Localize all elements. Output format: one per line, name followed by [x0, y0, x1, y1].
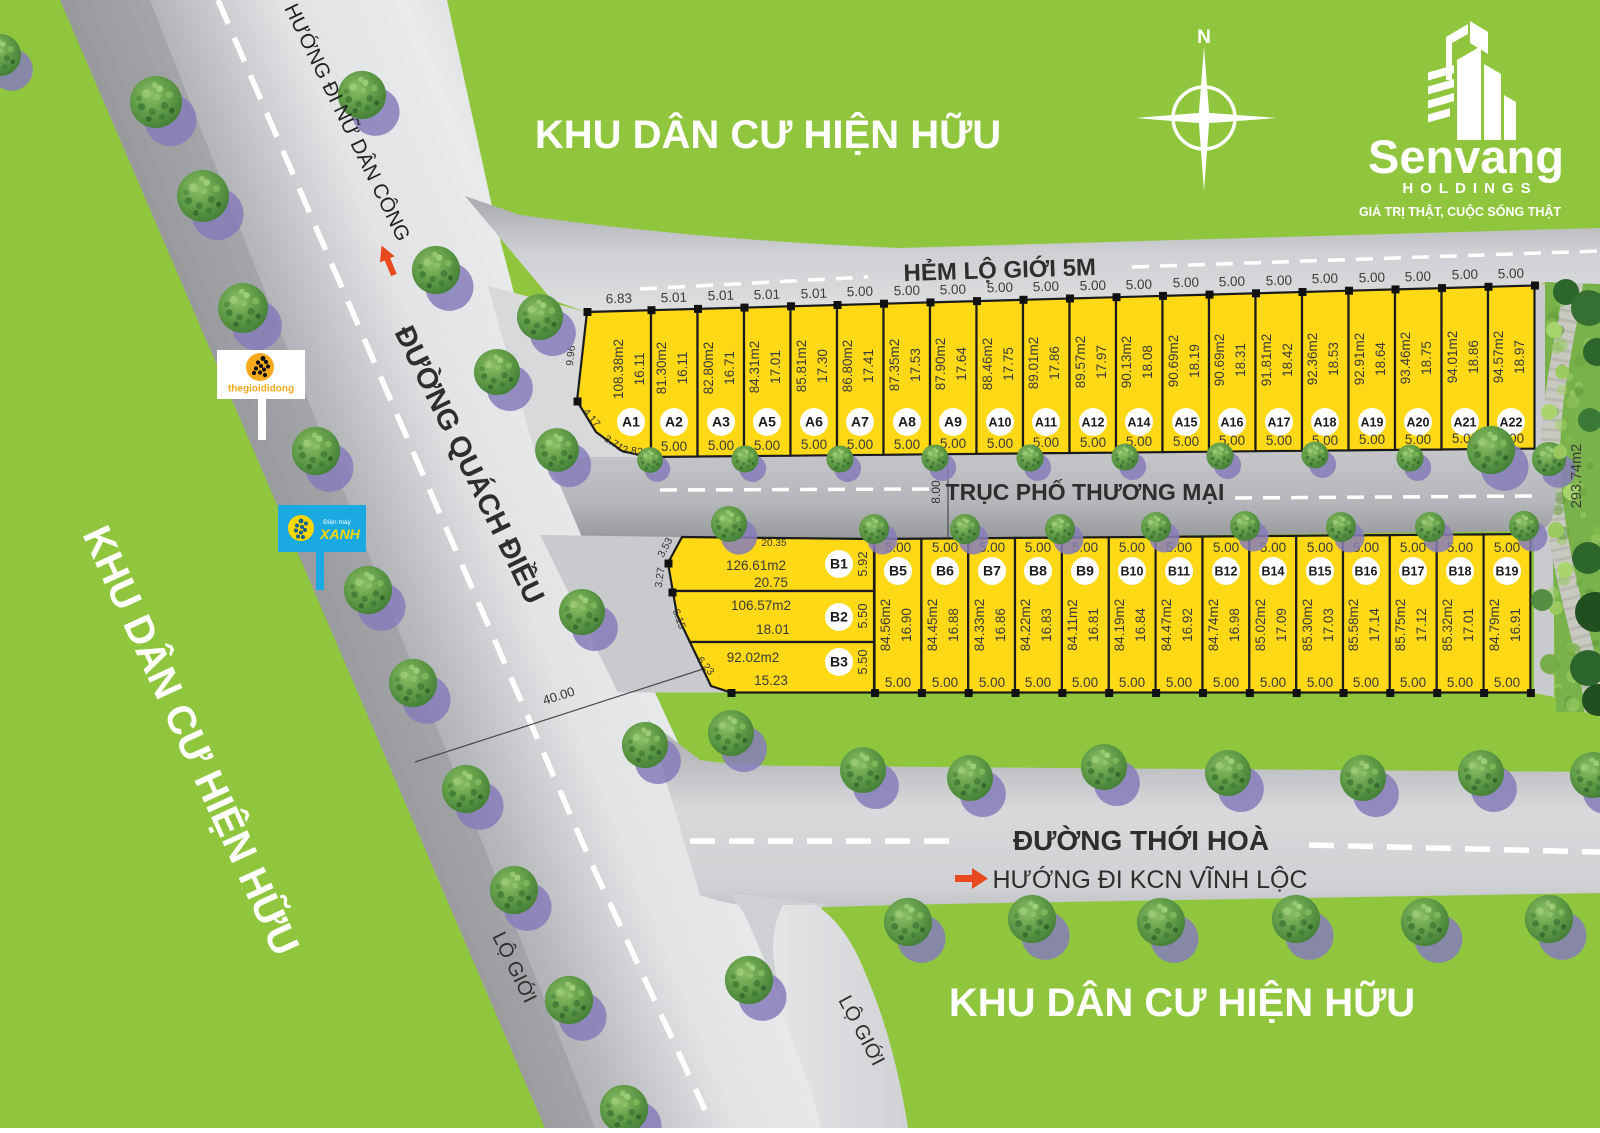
svg-text:86.80m2: 86.80m2	[840, 340, 855, 393]
svg-text:16.81: 16.81	[1086, 608, 1101, 642]
svg-text:84.31m2: 84.31m2	[747, 341, 762, 394]
svg-text:17.41: 17.41	[861, 349, 876, 383]
svg-text:Điện máy: Điện máy	[323, 519, 351, 526]
svg-text:B16: B16	[1355, 565, 1378, 579]
svg-text:5.00: 5.00	[847, 437, 873, 452]
svg-text:5.00: 5.00	[1080, 435, 1106, 450]
svg-text:B15: B15	[1309, 565, 1332, 579]
svg-text:B3: B3	[830, 654, 848, 670]
svg-text:5.00: 5.00	[1072, 675, 1098, 690]
svg-text:84.47m2: 84.47m2	[1159, 599, 1174, 652]
svg-text:18.19: 18.19	[1187, 344, 1202, 378]
svg-text:A19: A19	[1361, 416, 1384, 430]
svg-text:85.58m2: 85.58m2	[1346, 599, 1361, 652]
svg-text:16.88: 16.88	[946, 608, 961, 642]
svg-text:18.75: 18.75	[1419, 341, 1434, 375]
svg-text:82.80m2: 82.80m2	[701, 342, 716, 395]
svg-text:18.08: 18.08	[1140, 345, 1155, 379]
svg-text:5.50: 5.50	[855, 649, 870, 674]
svg-text:17.53: 17.53	[908, 348, 923, 382]
svg-text:5.00: 5.00	[1126, 277, 1153, 293]
svg-text:A2: A2	[665, 414, 683, 430]
svg-text:84.74m2: 84.74m2	[1206, 599, 1221, 652]
svg-text:A20: A20	[1407, 416, 1430, 430]
svg-text:B8: B8	[1029, 563, 1047, 579]
svg-text:17.30: 17.30	[815, 349, 830, 383]
svg-text:92.91m2: 92.91m2	[1352, 333, 1367, 386]
svg-text:92.02m2: 92.02m2	[727, 650, 780, 665]
svg-text:5.00: 5.00	[1260, 675, 1286, 690]
svg-text:16.11: 16.11	[632, 353, 647, 386]
svg-text:KHU DÂN CƯ HIỆN HỮU: KHU DÂN CƯ HIỆN HỮU	[949, 979, 1415, 1025]
svg-text:B7: B7	[983, 563, 1001, 579]
svg-text:84.33m2: 84.33m2	[972, 599, 987, 652]
svg-text:B19: B19	[1496, 565, 1519, 579]
svg-text:A22: A22	[1500, 416, 1523, 430]
svg-text:A7: A7	[851, 414, 869, 430]
svg-text:5.00: 5.00	[1494, 540, 1520, 555]
svg-text:89.57m2: 89.57m2	[1073, 336, 1088, 389]
svg-text:B12: B12	[1215, 565, 1238, 579]
svg-text:17.97: 17.97	[1094, 345, 1109, 379]
svg-text:5.00: 5.00	[1266, 433, 1292, 448]
svg-text:5.00: 5.00	[1359, 270, 1386, 286]
svg-text:17.03: 17.03	[1321, 608, 1336, 642]
svg-text:90.13m2: 90.13m2	[1119, 336, 1134, 389]
svg-text:5.00: 5.00	[979, 675, 1005, 690]
svg-text:5.00: 5.00	[1025, 540, 1051, 555]
svg-text:81.30m2: 81.30m2	[654, 342, 669, 395]
svg-text:5.01: 5.01	[708, 288, 735, 304]
svg-text:87.90m2: 87.90m2	[933, 338, 948, 391]
svg-text:93.46m2: 93.46m2	[1398, 332, 1413, 385]
svg-text:A9: A9	[944, 414, 962, 430]
svg-text:5.00: 5.00	[1312, 271, 1339, 287]
svg-text:5.00: 5.00	[1400, 540, 1426, 555]
svg-text:5.00: 5.00	[1119, 540, 1145, 555]
svg-text:84.56m2: 84.56m2	[878, 599, 893, 652]
svg-text:XANH: XANH	[319, 526, 361, 542]
svg-text:17.09: 17.09	[1274, 608, 1289, 642]
svg-text:17.86: 17.86	[1047, 346, 1062, 380]
svg-text:17.64: 17.64	[954, 347, 969, 381]
svg-text:85.75m2: 85.75m2	[1393, 599, 1408, 652]
svg-text:16.83: 16.83	[1039, 608, 1054, 642]
svg-text:87.35m2: 87.35m2	[887, 339, 902, 392]
svg-text:GIÁ TRỊ THẬT, CUỘC SỐNG THẬT: GIÁ TRỊ THẬT, CUỘC SỐNG THẬT	[1359, 204, 1561, 219]
svg-text:B5: B5	[889, 563, 907, 579]
svg-text:88.46m2: 88.46m2	[980, 338, 995, 391]
svg-text:126.61m2: 126.61m2	[726, 558, 786, 573]
svg-text:5.50: 5.50	[855, 603, 870, 628]
svg-text:N: N	[1197, 27, 1211, 48]
svg-text:20.35: 20.35	[761, 538, 786, 549]
svg-text:5.00: 5.00	[1307, 675, 1333, 690]
svg-text:B10: B10	[1121, 565, 1144, 579]
svg-text:A15: A15	[1175, 416, 1198, 430]
svg-text:293.74m2: 293.74m2	[1569, 444, 1585, 509]
svg-text:B6: B6	[936, 563, 954, 579]
svg-text:5.00: 5.00	[708, 438, 734, 453]
svg-text:84.79m2: 84.79m2	[1487, 599, 1502, 652]
svg-text:16.92: 16.92	[1180, 608, 1195, 642]
svg-text:16.71: 16.71	[722, 351, 737, 385]
svg-text:94.57m2: 94.57m2	[1491, 331, 1506, 384]
svg-text:89.01m2: 89.01m2	[1026, 337, 1041, 390]
svg-text:5.00: 5.00	[1266, 273, 1293, 289]
svg-text:18.64: 18.64	[1373, 342, 1388, 376]
svg-text:5.00: 5.00	[1213, 675, 1239, 690]
svg-text:A1: A1	[622, 414, 640, 430]
svg-text:84.11m2: 84.11m2	[1065, 599, 1080, 651]
svg-text:A21: A21	[1454, 416, 1477, 430]
svg-text:16.91: 16.91	[1508, 608, 1523, 642]
svg-text:5.00: 5.00	[754, 438, 780, 453]
svg-text:B14: B14	[1262, 565, 1285, 579]
svg-text:A8: A8	[898, 414, 916, 430]
svg-text:16.84: 16.84	[1133, 608, 1148, 642]
svg-text:18.86: 18.86	[1466, 340, 1481, 374]
svg-text:B17: B17	[1402, 565, 1425, 579]
svg-text:5.00: 5.00	[1219, 274, 1246, 290]
svg-text:B11: B11	[1168, 565, 1190, 579]
svg-text:A18: A18	[1314, 416, 1337, 430]
svg-text:B2: B2	[830, 609, 848, 625]
svg-text:5.00: 5.00	[885, 675, 911, 690]
svg-text:91.81m2: 91.81m2	[1259, 334, 1274, 387]
svg-text:A11: A11	[1035, 416, 1057, 430]
svg-text:5.00: 5.00	[894, 437, 920, 452]
svg-text:5.00: 5.00	[1498, 266, 1525, 282]
svg-text:A16: A16	[1221, 416, 1244, 430]
svg-text:5.00: 5.00	[1119, 675, 1145, 690]
svg-text:108.38m2: 108.38m2	[611, 339, 626, 399]
svg-text:16.11: 16.11	[675, 352, 690, 385]
svg-text:A5: A5	[758, 414, 776, 430]
svg-text:8.00: 8.00	[929, 480, 943, 504]
svg-text:5.00: 5.00	[1307, 540, 1333, 555]
svg-text:5.00: 5.00	[661, 439, 687, 454]
svg-text:A12: A12	[1082, 416, 1105, 430]
svg-text:16.90: 16.90	[899, 608, 914, 642]
svg-text:B1: B1	[830, 556, 848, 572]
svg-text:A17: A17	[1268, 416, 1291, 430]
svg-text:B18: B18	[1449, 565, 1472, 579]
svg-text:5.00: 5.00	[1447, 675, 1473, 690]
svg-text:18.31: 18.31	[1233, 343, 1248, 377]
svg-text:17.12: 17.12	[1414, 608, 1429, 642]
svg-text:5.00: 5.00	[987, 436, 1013, 451]
svg-text:90.69m2: 90.69m2	[1212, 334, 1227, 387]
svg-text:5.00: 5.00	[1452, 267, 1479, 283]
svg-text:5.01: 5.01	[754, 287, 781, 303]
svg-text:A6: A6	[805, 414, 823, 430]
svg-text:5.00: 5.00	[932, 540, 958, 555]
svg-text:A10: A10	[989, 416, 1012, 430]
svg-text:B9: B9	[1076, 563, 1094, 579]
svg-text:17.01: 17.01	[768, 350, 783, 384]
svg-text:HOLDINGS: HOLDINGS	[1402, 180, 1537, 197]
svg-text:5.00: 5.00	[1025, 675, 1051, 690]
svg-text:94.01m2: 94.01m2	[1445, 331, 1460, 384]
svg-text:16.98: 16.98	[1227, 608, 1242, 642]
svg-text:5.00: 5.00	[1400, 675, 1426, 690]
svg-text:18.97: 18.97	[1512, 340, 1527, 374]
svg-text:5.00: 5.00	[1173, 275, 1200, 291]
svg-text:85.30m2: 85.30m2	[1300, 599, 1315, 652]
svg-text:6.83: 6.83	[606, 291, 633, 307]
svg-text:5.00: 5.00	[801, 437, 827, 452]
svg-text:84.45m2: 84.45m2	[925, 599, 940, 652]
svg-text:106.57m2: 106.57m2	[731, 598, 791, 613]
svg-text:A3: A3	[712, 414, 730, 430]
svg-text:17.14: 17.14	[1367, 608, 1382, 642]
svg-text:5.00: 5.00	[1494, 675, 1520, 690]
svg-text:92.36m2: 92.36m2	[1305, 333, 1320, 386]
svg-text:17.01: 17.01	[1461, 608, 1476, 642]
svg-text:84.19m2: 84.19m2	[1112, 599, 1127, 652]
svg-text:18.53: 18.53	[1326, 342, 1341, 376]
svg-text:5.00: 5.00	[1173, 434, 1199, 449]
svg-text:5.00: 5.00	[1166, 675, 1192, 690]
svg-text:5.00: 5.00	[1359, 432, 1385, 447]
svg-text:18.42: 18.42	[1280, 343, 1295, 377]
svg-text:5.00: 5.00	[847, 284, 874, 300]
svg-text:5.00: 5.00	[1213, 540, 1239, 555]
svg-text:5.01: 5.01	[661, 290, 688, 306]
svg-text:85.02m2: 85.02m2	[1253, 599, 1268, 652]
svg-text:17.75: 17.75	[1001, 347, 1016, 381]
svg-text:TRỤC PHỐ THƯƠNG MẠI: TRỤC PHỐ THƯƠNG MẠI	[946, 478, 1225, 505]
svg-text:5.00: 5.00	[932, 675, 958, 690]
svg-text:18.01: 18.01	[756, 622, 790, 637]
svg-text:16.86: 16.86	[993, 608, 1008, 642]
svg-text:5.00: 5.00	[1353, 675, 1379, 690]
svg-text:15.23: 15.23	[754, 673, 788, 688]
svg-text:KHU DÂN CƯ HIỆN HỮU: KHU DÂN CƯ HIỆN HỮU	[535, 111, 1001, 157]
svg-text:84.22m2: 84.22m2	[1018, 599, 1033, 652]
svg-text:5.92: 5.92	[855, 551, 870, 576]
svg-text:HƯỚNG ĐI KCN VĨNH LỘC: HƯỚNG ĐI KCN VĨNH LỘC	[992, 865, 1307, 894]
svg-text:Senvang: Senvang	[1368, 130, 1564, 183]
svg-text:thegioididong: thegioididong	[228, 384, 294, 395]
svg-text:20.75: 20.75	[754, 575, 788, 590]
svg-text:5.00: 5.00	[1405, 269, 1432, 285]
svg-text:ĐƯỜNG THỚI HOÀ: ĐƯỜNG THỚI HOÀ	[1013, 825, 1269, 856]
svg-text:85.32m2: 85.32m2	[1440, 599, 1455, 652]
svg-text:5.01: 5.01	[801, 286, 828, 302]
svg-text:90.69m2: 90.69m2	[1166, 335, 1181, 388]
svg-text:85.81m2: 85.81m2	[794, 340, 809, 393]
svg-text:A14: A14	[1128, 416, 1151, 430]
